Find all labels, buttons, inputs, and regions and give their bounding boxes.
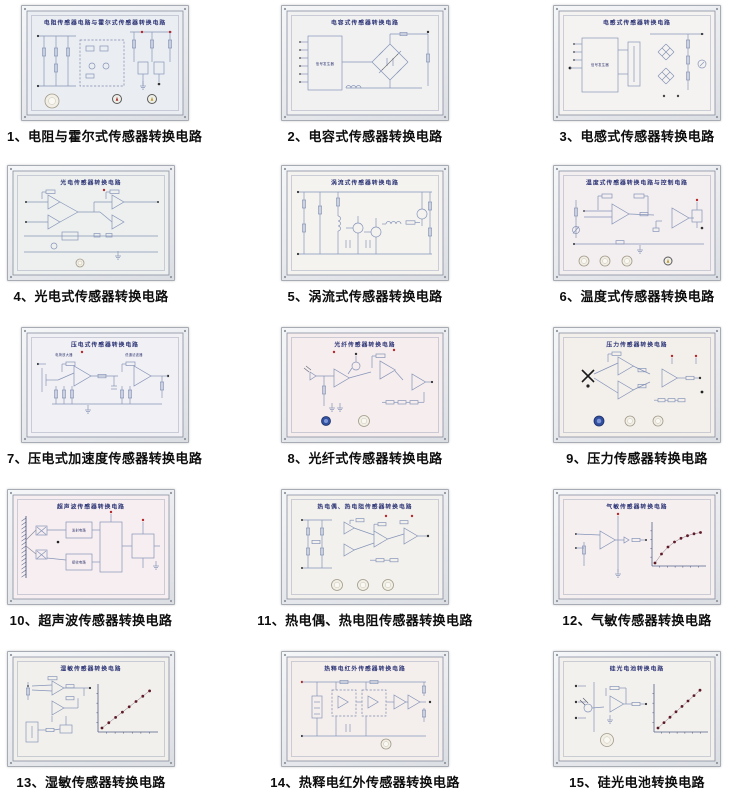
screw-icon (284, 168, 286, 170)
screw-icon (24, 8, 26, 10)
circuit-board-panel: 气敏传感器转换电路 (553, 489, 721, 605)
screw-icon (10, 168, 12, 170)
panel-caption: 11、热电偶、热电阻传感器转换电路 (257, 614, 473, 629)
panel-grid: 电阻传感器电路与霍尔式传感器转换电路 1、电阻与霍尔式传感器转换电路 电容式传感… (0, 0, 730, 788)
dial-indicator (664, 257, 672, 265)
screw-icon (556, 492, 558, 494)
circuit-cell: 涡流式传感器转换电路 5、涡流式传感器转换电路 (243, 152, 487, 314)
circuit-board-panel: 压电式传感器转换电路 电荷放大器低通滤波器 (21, 327, 189, 443)
screw-icon (284, 438, 286, 440)
panel-caption: 8、光纤式传感器转换电路 (287, 452, 442, 467)
white-knob (357, 580, 368, 591)
circuit-board-panel: 温度式传感器转换电路与控制电路 (553, 165, 721, 281)
circuit-board-face: 热电偶、热电阻传感器转换电路 (282, 490, 448, 604)
circuit-board-face: 光纤传感器转换电路 (282, 328, 448, 442)
screw-icon (444, 276, 446, 278)
svg-text:信号发生器: 信号发生器 (591, 62, 609, 67)
screw-icon (24, 438, 26, 440)
board-title: 光电传感器转换电路 (59, 179, 121, 187)
circuit-item: 涡流式传感器转换电路 5、涡流式传感器转换电路 (281, 165, 449, 305)
panel-caption: 4、光电式传感器转换电路 (13, 290, 168, 305)
screw-icon (24, 330, 26, 332)
circuit-cell: 湿敏传感器转换电路 13、湿敏传感器转换电路 (0, 636, 243, 788)
panel-caption: 2、电容式传感器转换电路 (287, 130, 442, 145)
screw-icon (284, 276, 286, 278)
circuit-item: 硅光电池转换电路 15、硅光电池转换电路 (553, 651, 721, 788)
white-knob (381, 739, 391, 749)
circuit-board-panel: 电感式传感器转换电路 信号发生器 (553, 5, 721, 121)
board-title: 热释电红外传感器转换电路 (324, 665, 406, 673)
screw-icon (716, 116, 718, 118)
circuit-board-panel: 热电偶、热电阻传感器转换电路 (281, 489, 449, 605)
screw-icon (556, 168, 558, 170)
circuit-board-panel: 热释电红外传感器转换电路 (281, 651, 449, 767)
circuit-board-panel: 电容式传感器转换电路 信号发生器 (281, 5, 449, 121)
circuit-cell: 电阻传感器电路与霍尔式传感器转换电路 1、电阻与霍尔式传感器转换电路 (0, 0, 243, 152)
screw-icon (284, 600, 286, 602)
screw-icon (284, 8, 286, 10)
board-title: 硅光电池转换电路 (610, 665, 664, 673)
screw-icon (556, 600, 558, 602)
screw-icon (10, 492, 12, 494)
circuit-item: 压电式传感器转换电路 电荷放大器低通滤波器 7、压电式加速度传感器转换电路 (7, 327, 202, 467)
screw-icon (556, 330, 558, 332)
screw-icon (284, 330, 286, 332)
circuit-board-panel: 压力传感器转换电路 (553, 327, 721, 443)
circuit-cell: 光纤传感器转换电路 8、光纤式传感器转换电路 (243, 314, 487, 474)
screw-icon (716, 438, 718, 440)
screw-icon (284, 116, 286, 118)
panel-caption: 6、温度式传感器转换电路 (559, 290, 714, 305)
screw-icon (556, 438, 558, 440)
svg-text:信号发生器: 信号发生器 (316, 61, 335, 66)
screw-icon (10, 762, 12, 764)
screw-icon (444, 762, 446, 764)
circuit-board-face: 硅光电池转换电路 (554, 652, 720, 766)
screw-icon (444, 116, 446, 118)
svg-text:低通滤波器: 低通滤波器 (125, 352, 143, 357)
circuit-board-face: 压力传感器转换电路 (554, 328, 720, 442)
screw-icon (170, 276, 172, 278)
circuit-board-face: 电感式传感器转换电路 信号发生器 (554, 6, 720, 120)
screw-icon (716, 654, 718, 656)
board-title: 超声波传感器转换电路 (56, 503, 125, 511)
circuit-board-face: 压电式传感器转换电路 电荷放大器低通滤波器 (22, 328, 188, 442)
circuit-cell: 硅光电池转换电路 15、硅光电池转换电路 (487, 636, 730, 788)
screw-icon (170, 600, 172, 602)
screw-icon (556, 116, 558, 118)
circuit-board-face: 涡流式传感器转换电路 (282, 166, 448, 280)
circuit-item: 热电偶、热电阻传感器转换电路 11、热电偶、热电阻传感器转换电路 (257, 489, 473, 629)
blue-knob (322, 417, 331, 426)
white-knob (653, 416, 663, 426)
circuit-cell: 电感式传感器转换电路 信号发生器 3、电感式传感器转换电路 (487, 0, 730, 152)
screw-icon (716, 8, 718, 10)
screw-icon (170, 492, 172, 494)
screw-icon (444, 600, 446, 602)
circuit-board-panel: 硅光电池转换电路 (553, 651, 721, 767)
board-title: 湿敏传感器转换电路 (60, 665, 121, 673)
white-knob (622, 256, 632, 266)
circuit-item: 光电传感器转换电路 4、光电式传感器转换电路 (7, 165, 175, 305)
circuit-item: 光纤传感器转换电路 8、光纤式传感器转换电路 (281, 327, 449, 467)
svg-text:接收电路: 接收电路 (72, 560, 86, 565)
panel-caption: 10、超声波传感器转换电路 (10, 614, 173, 629)
board-title: 热电偶、热电阻传感器转换电路 (317, 503, 412, 511)
circuit-cell: 电容式传感器转换电路 信号发生器 2、电容式传感器转换电路 (243, 0, 487, 152)
screw-icon (170, 654, 172, 656)
circuit-board-panel: 超声波传感器转换电路 发射电路接收电路 (7, 489, 175, 605)
circuit-item: 电容式传感器转换电路 信号发生器 2、电容式传感器转换电路 (281, 5, 449, 145)
white-knob (359, 416, 370, 427)
circuit-item: 电阻传感器电路与霍尔式传感器转换电路 1、电阻与霍尔式传感器转换电路 (7, 5, 202, 145)
screw-icon (444, 168, 446, 170)
screw-icon (716, 492, 718, 494)
circuit-item: 温度式传感器转换电路与控制电路 6、温度式传感器转换电路 (553, 165, 721, 305)
circuit-board-face: 热释电红外传感器转换电路 (282, 652, 448, 766)
white-knob (600, 256, 610, 266)
circuit-item: 气敏传感器转换电路 12、气敏传感器转换电路 (553, 489, 721, 629)
circuit-item: 湿敏传感器转换电路 13、湿敏传感器转换电路 (7, 651, 175, 788)
panel-caption: 9、压力传感器转换电路 (566, 452, 708, 467)
screw-icon (284, 654, 286, 656)
circuit-item: 电感式传感器转换电路 信号发生器 3、电感式传感器转换电路 (553, 5, 721, 145)
screw-icon (444, 492, 446, 494)
screw-icon (716, 168, 718, 170)
screw-icon (184, 438, 186, 440)
panel-caption: 12、气敏传感器转换电路 (562, 614, 711, 629)
board-title: 电阻传感器电路与霍尔式传感器转换电路 (43, 19, 165, 27)
panel-caption: 14、热释电红外传感器转换电路 (270, 776, 459, 788)
panel-caption: 3、电感式传感器转换电路 (559, 130, 714, 145)
board-title: 电容式传感器转换电路 (331, 19, 399, 27)
white-knob (76, 259, 84, 267)
white-knob (45, 94, 59, 108)
circuit-item: 压力传感器转换电路 9、压力传感器转换电路 (553, 327, 721, 467)
board-title: 温度式传感器转换电路与控制电路 (586, 179, 688, 187)
circuit-board-panel: 光电传感器转换电路 (7, 165, 175, 281)
screw-icon (716, 276, 718, 278)
circuit-board-panel: 光纤传感器转换电路 (281, 327, 449, 443)
board-title: 压力传感器转换电路 (606, 341, 667, 349)
circuit-board-face: 光电传感器转换电路 (8, 166, 174, 280)
circuit-board-face: 超声波传感器转换电路 发射电路接收电路 (8, 490, 174, 604)
dial-indicator (147, 95, 156, 104)
screw-icon (284, 762, 286, 764)
board-title: 气敏传感器转换电路 (605, 503, 667, 511)
screw-icon (444, 438, 446, 440)
white-knob (579, 256, 589, 266)
svg-text:电荷放大器: 电荷放大器 (55, 352, 73, 357)
svg-text:发射电路: 发射电路 (72, 528, 86, 533)
circuit-cell: 热释电红外传感器转换电路 14、热释电红外传感器转换电路 (243, 636, 487, 788)
white-knob (331, 580, 342, 591)
circuit-item: 热释电红外传感器转换电路 14、热释电红外传感器转换电路 (270, 651, 459, 788)
circuit-board-face: 温度式传感器转换电路与控制电路 (554, 166, 720, 280)
screw-icon (444, 654, 446, 656)
screw-icon (716, 600, 718, 602)
circuit-cell: 温度式传感器转换电路与控制电路 6、温度式传感器转换电路 (487, 152, 730, 314)
circuit-cell: 热电偶、热电阻传感器转换电路 11、热电偶、热电阻传感器转换电路 (243, 474, 487, 636)
screw-icon (24, 116, 26, 118)
board-title: 涡流式传感器转换电路 (331, 179, 399, 187)
screw-icon (444, 8, 446, 10)
circuit-board-face: 气敏传感器转换电路 (554, 490, 720, 604)
circuit-board-face: 电阻传感器电路与霍尔式传感器转换电路 (22, 6, 188, 120)
circuit-cell: 压电式传感器转换电路 电荷放大器低通滤波器 7、压电式加速度传感器转换电路 (0, 314, 243, 474)
screw-icon (556, 654, 558, 656)
circuit-cell: 超声波传感器转换电路 发射电路接收电路 10、超声波传感器转换电路 (0, 474, 243, 636)
panel-caption: 7、压电式加速度传感器转换电路 (7, 452, 202, 467)
screw-icon (556, 762, 558, 764)
circuit-cell: 光电传感器转换电路 4、光电式传感器转换电路 (0, 152, 243, 314)
screw-icon (716, 762, 718, 764)
screw-icon (444, 330, 446, 332)
circuit-cell: 压力传感器转换电路 9、压力传感器转换电路 (487, 314, 730, 474)
board-title: 光纤传感器转换电路 (333, 341, 395, 349)
panel-caption: 13、湿敏传感器转换电路 (16, 776, 165, 788)
screw-icon (10, 600, 12, 602)
board-title: 压电式传感器转换电路 (71, 341, 139, 349)
screw-icon (184, 8, 186, 10)
screw-icon (10, 654, 12, 656)
circuit-board-panel: 湿敏传感器转换电路 (7, 651, 175, 767)
screw-icon (556, 8, 558, 10)
panel-caption: 5、涡流式传感器转换电路 (287, 290, 442, 305)
screw-icon (184, 330, 186, 332)
white-knob (625, 416, 635, 426)
screw-icon (170, 762, 172, 764)
circuit-board-face: 湿敏传感器转换电路 (8, 652, 174, 766)
screw-icon (184, 116, 186, 118)
white-knob (601, 734, 614, 747)
screw-icon (716, 330, 718, 332)
panel-caption: 1、电阻与霍尔式传感器转换电路 (7, 130, 202, 145)
circuit-board-panel: 涡流式传感器转换电路 (281, 165, 449, 281)
circuit-item: 超声波传感器转换电路 发射电路接收电路 10、超声波传感器转换电路 (7, 489, 175, 629)
dial-indicator (112, 95, 121, 104)
screw-icon (170, 168, 172, 170)
white-knob (382, 580, 393, 591)
circuit-board-face: 电容式传感器转换电路 信号发生器 (282, 6, 448, 120)
screw-icon (10, 276, 12, 278)
board-title: 电感式传感器转换电路 (603, 19, 671, 27)
blue-knob (594, 416, 604, 426)
circuit-board-panel: 电阻传感器电路与霍尔式传感器转换电路 (21, 5, 189, 121)
panel-caption: 15、硅光电池转换电路 (569, 776, 705, 788)
circuit-cell: 气敏传感器转换电路 12、气敏传感器转换电路 (487, 474, 730, 636)
screw-icon (556, 276, 558, 278)
screw-icon (284, 492, 286, 494)
